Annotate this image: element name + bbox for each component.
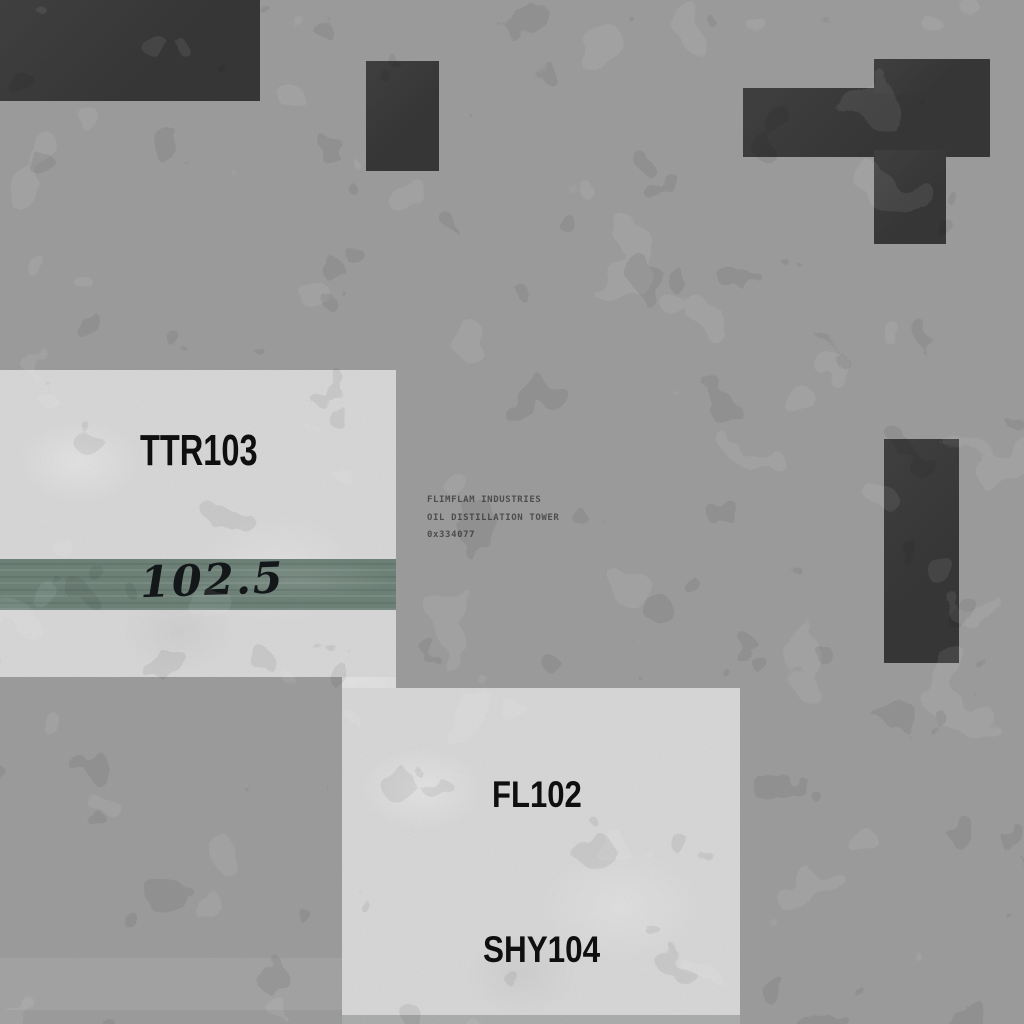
- slab-fl102: [342, 688, 740, 1024]
- facility-hex-id-line: 0x334077: [427, 527, 559, 545]
- dark-structure-top-right-block: [874, 59, 990, 94]
- factory-ground-scene: TTR103 102.5 FL102 SHY104 FLIMFLAM INDUS…: [0, 0, 1024, 1024]
- slab-label-fl102: FL102: [492, 776, 582, 813]
- concrete-wear-band: [0, 958, 345, 1010]
- facility-company-line: FLIMFLAM INDUSTRIES: [427, 492, 559, 510]
- dark-structure-top-left: [0, 0, 260, 101]
- dark-structure-top-right-bar: [743, 88, 990, 157]
- facility-info-text: FLIMFLAM INDUSTRIES OIL DISTILLATION TOW…: [427, 492, 559, 545]
- dark-structure-small: [366, 61, 439, 171]
- slab-label-ttr103: TTR103: [140, 429, 258, 473]
- facility-name-line: OIL DISTILLATION TOWER: [427, 510, 559, 528]
- dark-structure-right-pillar: [884, 439, 959, 663]
- dark-structure-top-right-leg: [874, 150, 946, 244]
- slab-bottom-wear-strip: [342, 1015, 740, 1024]
- slab-ttr103: [0, 370, 396, 677]
- slab-label-shy104: SHY104: [483, 931, 600, 968]
- gauge-handwritten-value: 102.5: [139, 556, 271, 608]
